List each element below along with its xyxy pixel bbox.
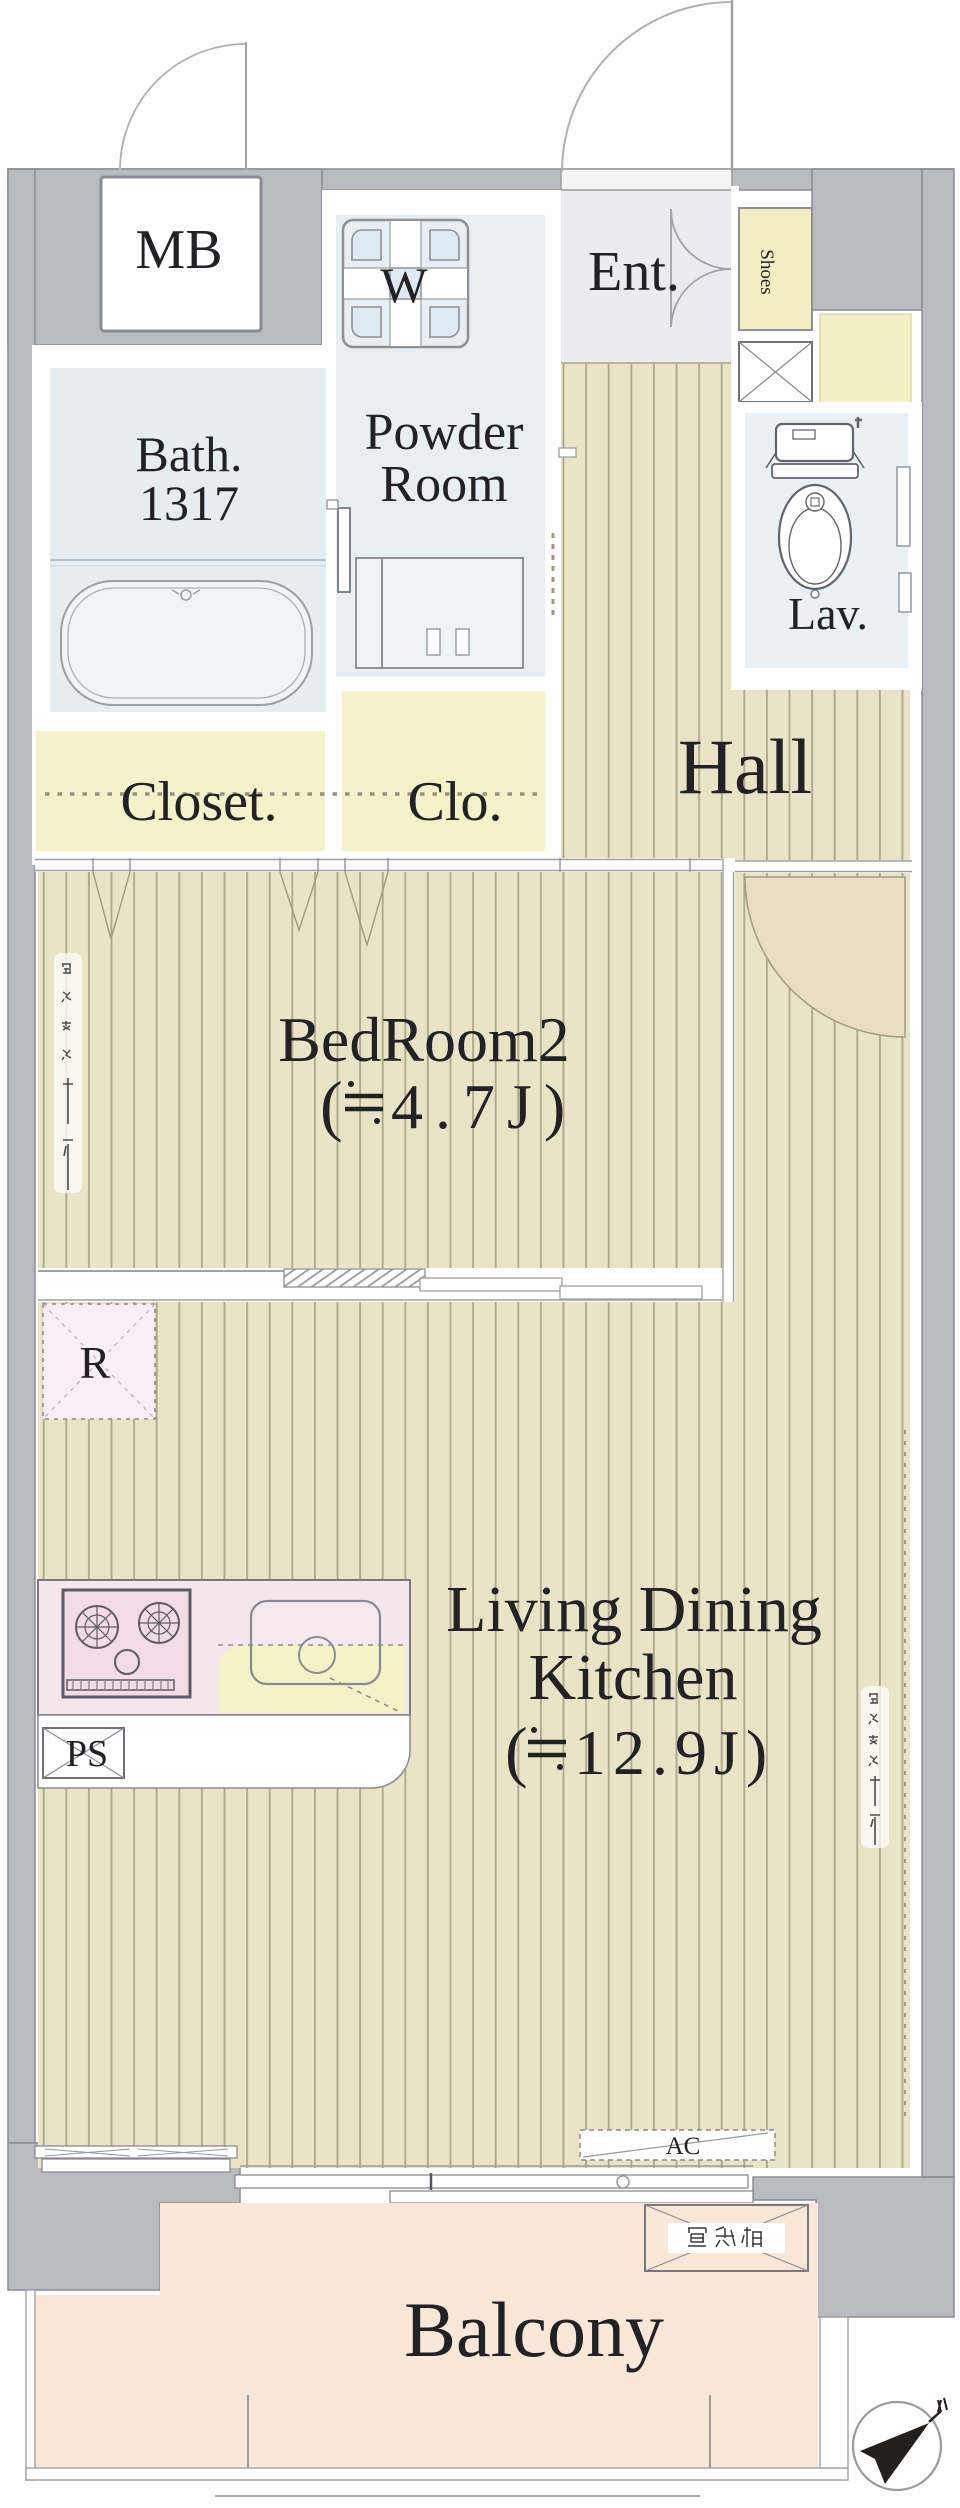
svg-text:(: ( [505, 1713, 528, 1789]
svg-text:PS: PS [66, 1733, 108, 1775]
svg-text:Ent.: Ent. [588, 241, 680, 303]
svg-text:4.7J): 4.7J) [391, 1071, 577, 1142]
svg-text:(: ( [320, 1067, 343, 1143]
svg-text:Closet.: Closet. [120, 771, 277, 833]
svg-text:Powder: Powder [365, 404, 524, 461]
svg-text:Balcony: Balcony [404, 2286, 664, 2373]
svg-text:AC: AC [666, 2133, 701, 2160]
svg-text:R: R [80, 1337, 111, 1388]
svg-text:Living Dining: Living Dining [446, 1573, 822, 1646]
svg-text:Shoes: Shoes [756, 249, 777, 294]
svg-text:Room: Room [380, 456, 507, 513]
svg-text:1317: 1317 [139, 475, 239, 531]
svg-text:Lav.: Lav. [788, 588, 868, 639]
svg-text:Clo.: Clo. [408, 771, 503, 833]
svg-text:MB: MB [135, 219, 222, 281]
svg-text:Kitchen: Kitchen [529, 1641, 738, 1714]
svg-text:Bath.: Bath. [136, 426, 243, 482]
svg-text:W: W [380, 257, 428, 313]
svg-text:Hall: Hall [678, 723, 812, 810]
svg-text:12.9J): 12.9J) [574, 1717, 774, 1788]
svg-text:BedRoom2: BedRoom2 [278, 1004, 570, 1075]
